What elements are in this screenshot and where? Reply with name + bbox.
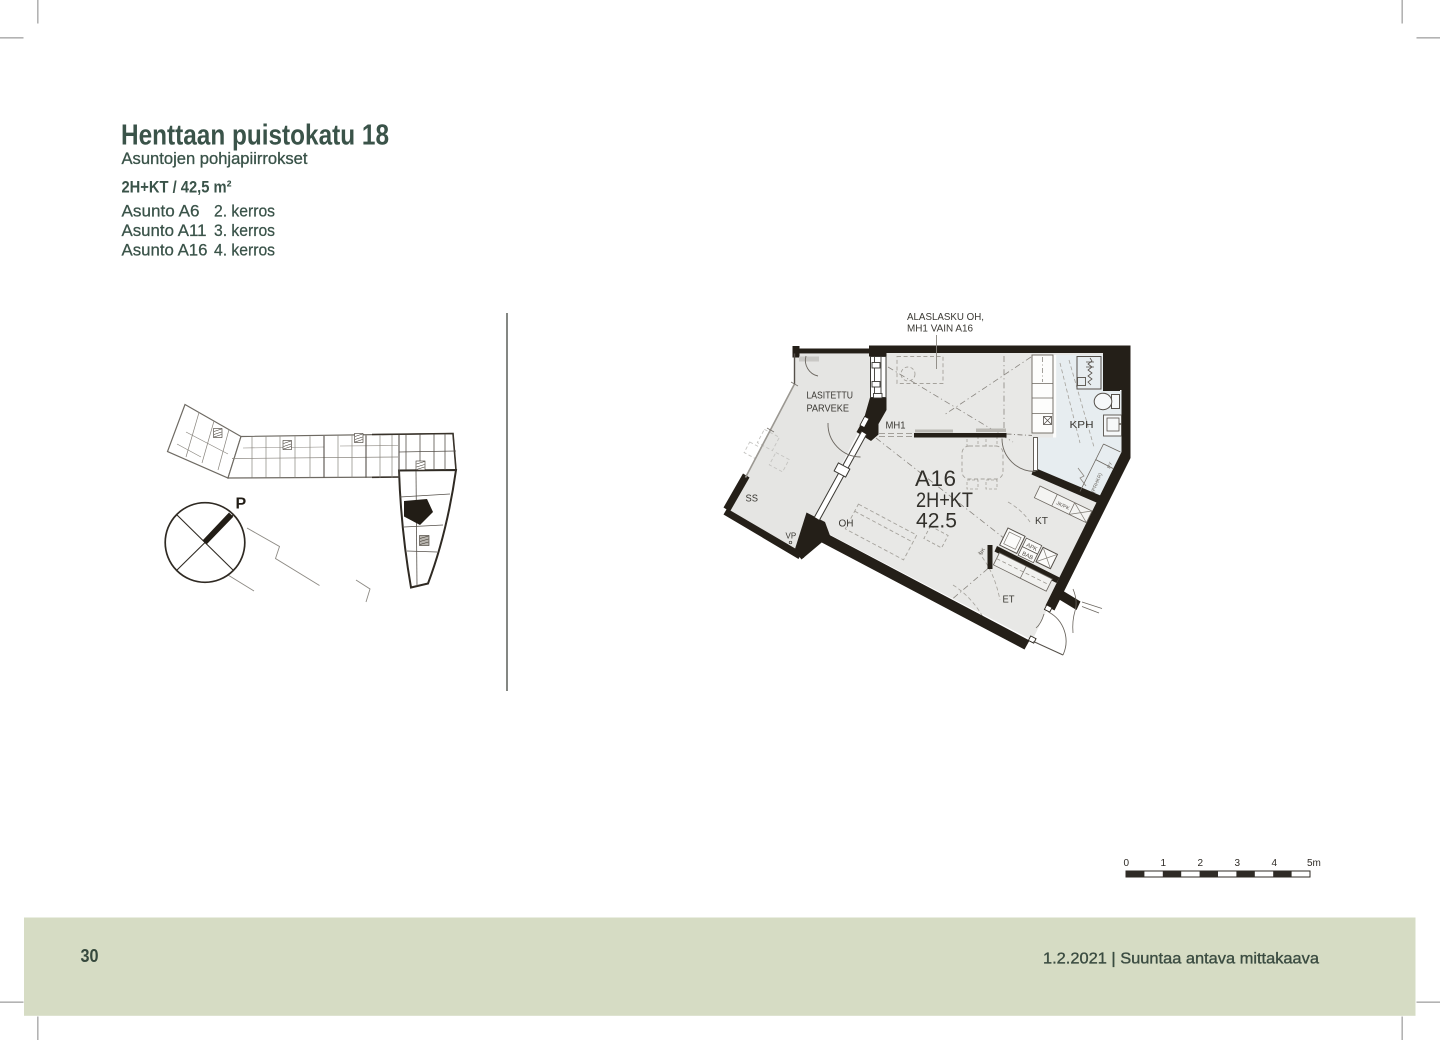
svg-text:Asunto A6: Asunto A6 (122, 203, 200, 221)
svg-text:30: 30 (81, 946, 99, 966)
svg-text:VP: VP (786, 532, 797, 541)
svg-text:P: P (236, 496, 247, 513)
svg-text:ET: ET (1003, 595, 1015, 606)
svg-text:Asunto A11: Asunto A11 (122, 222, 207, 240)
svg-text:2. kerros: 2. kerros (214, 203, 275, 221)
svg-text:SS: SS (746, 494, 759, 505)
svg-text:ALASLASKU OH,: ALASLASKU OH, (907, 312, 984, 323)
svg-text:2H+KT / 42,5 m²: 2H+KT / 42,5 m² (122, 179, 232, 197)
svg-text:2: 2 (1198, 858, 1204, 869)
svg-text:OH: OH (839, 519, 854, 530)
svg-text:LASITETTU: LASITETTU (807, 391, 854, 402)
svg-text:PARVEKE: PARVEKE (807, 404, 850, 415)
svg-text:42.5: 42.5 (916, 510, 957, 533)
svg-text:0: 0 (1124, 858, 1130, 869)
svg-text:4: 4 (1272, 858, 1278, 869)
svg-text:3. kerros: 3. kerros (214, 222, 275, 240)
svg-text:Henttaan puistokatu 18: Henttaan puistokatu 18 (121, 120, 389, 152)
svg-text:5m: 5m (1307, 858, 1321, 869)
svg-text:KT: KT (1035, 516, 1048, 527)
svg-text:KPH: KPH (1070, 419, 1094, 431)
svg-text:MH1: MH1 (886, 421, 906, 432)
svg-text:Asuntojen pohjapiirrokset: Asuntojen pohjapiirrokset (122, 150, 308, 168)
svg-text:A16: A16 (915, 466, 957, 491)
svg-text:3: 3 (1235, 858, 1241, 869)
svg-text:MH1 VAIN A16: MH1 VAIN A16 (907, 324, 973, 335)
svg-text:1.2.2021 | Suuntaa antava mitt: 1.2.2021 | Suuntaa antava mittakaava (1043, 951, 1319, 968)
svg-text:4. kerros: 4. kerros (214, 242, 275, 260)
svg-text:1: 1 (1161, 858, 1167, 869)
svg-text:Asunto A16: Asunto A16 (122, 242, 208, 260)
